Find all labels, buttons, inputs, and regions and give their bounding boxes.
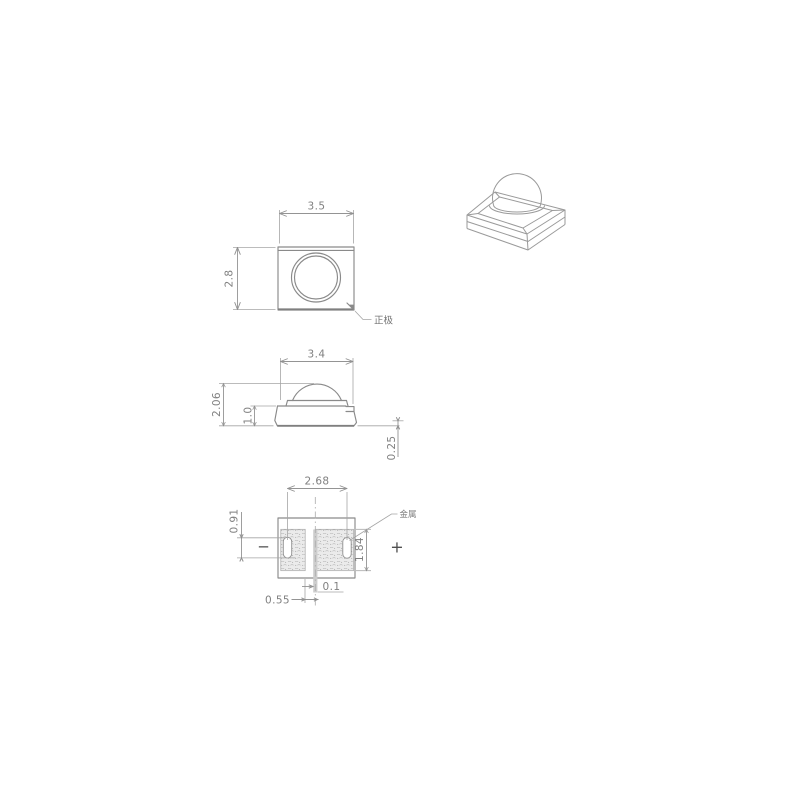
bottom-view: 2.68 0.91 1.84 0.55 0.1 <box>229 476 417 608</box>
dimension-total-height: 2.06 <box>211 384 314 426</box>
dim-label-top-width: 3.5 <box>308 201 326 213</box>
anode-label: 正极 <box>374 315 394 327</box>
iso-top-face <box>467 192 565 234</box>
polarity-minus-symbol: − <box>257 538 270 556</box>
dimension-pad-inset: 0.55 <box>265 579 319 607</box>
dim-label-pad-inset: 0.55 <box>265 595 290 607</box>
lens-inner-circle <box>295 256 338 299</box>
dim-label-top-height: 2.8 <box>224 270 236 288</box>
dim-label-standoff: 0.25 <box>386 436 398 461</box>
dim-label-side-width: 3.4 <box>308 349 326 361</box>
iso-dome <box>493 174 542 205</box>
anode-callout: 正极 <box>355 311 394 327</box>
iso-front-edge <box>527 234 528 250</box>
side-view: 3.4 2.06 1.0 0.25 <box>211 349 404 461</box>
cathode-half-hole <box>283 537 291 558</box>
dim-label-gap: 0.1 <box>323 581 341 593</box>
dimension-body-height: 1.0 <box>243 406 277 426</box>
led-package-dimension-drawing: 3.5 2.8 正极 <box>0 0 800 800</box>
dim-label-slot-length: 0.91 <box>229 509 241 534</box>
perspective-view <box>467 174 565 250</box>
polarity-plus-symbol: + <box>390 538 403 557</box>
dim-label-body-height: 1.0 <box>243 407 255 425</box>
side-dome <box>293 384 342 400</box>
dimension-top-width: 3.5 <box>280 201 354 244</box>
dimension-top-height: 2.8 <box>224 247 276 309</box>
metal-label: 金属 <box>400 509 417 520</box>
dimension-standoff: 0.25 <box>386 417 404 460</box>
iso-bevel-crease <box>467 217 565 242</box>
side-left-edge <box>275 406 278 426</box>
dim-label-pad-pitch: 2.68 <box>305 476 330 488</box>
top-view: 3.5 2.8 正极 <box>224 201 394 327</box>
drawing-canvas: 3.5 2.8 正极 <box>0 0 800 800</box>
dim-label-total-height: 2.06 <box>211 392 223 417</box>
side-right-edge <box>354 412 357 426</box>
dimension-gap: 0.1 <box>302 581 344 593</box>
dimension-pad-width: 1.84 <box>354 529 371 570</box>
dimension-side-width: 3.4 <box>281 349 354 405</box>
metal-callout: 金属 <box>350 509 417 541</box>
dim-label-pad-width: 1.84 <box>354 537 366 562</box>
lens-outer-circle <box>292 253 341 302</box>
side-notch <box>346 407 354 412</box>
